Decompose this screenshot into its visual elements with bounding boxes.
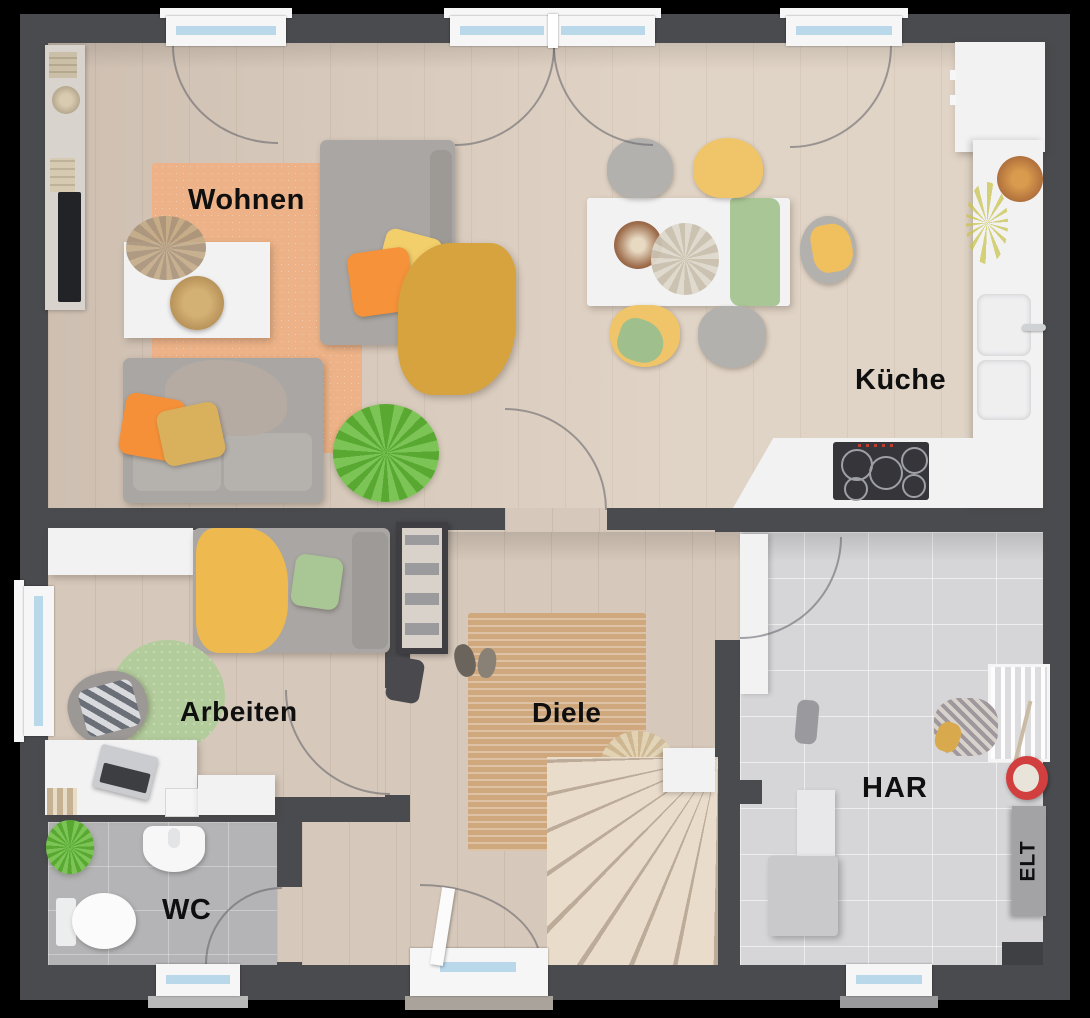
- desk-books: [47, 788, 77, 815]
- har-floor-niche: [1002, 942, 1043, 965]
- room-label-diele: Diele: [532, 697, 601, 729]
- washing-machine: [768, 856, 838, 936]
- diele-floor-entry: [302, 822, 410, 965]
- dining-chair-grey-1: [607, 138, 673, 198]
- elt-panel-label: ELT: [1017, 840, 1041, 881]
- elt-panel: ELT: [1012, 806, 1046, 916]
- office-sideboard: [48, 528, 193, 575]
- wardrobe-items: [405, 535, 439, 635]
- room-label-arbeiten: Arbeiten: [180, 696, 298, 728]
- stair-landing: [663, 748, 715, 792]
- burner-4: [901, 447, 928, 474]
- daybed-pillow-green: [290, 553, 345, 611]
- decor-branch: [966, 182, 1008, 264]
- room-label-wc: WC: [162, 894, 211, 927]
- window-wc-glass: [166, 975, 230, 984]
- window-sill-har: [840, 996, 938, 1008]
- floor-plan: ELT Wohnen Küche Arbeiten Diele WC HAR: [0, 0, 1090, 1018]
- toilet-bowl: [72, 893, 136, 949]
- fridge-hinge-top: [950, 70, 956, 80]
- pampas-plant: [126, 216, 206, 280]
- room-label-wohnen: Wohnen: [188, 184, 305, 217]
- dining-chair-yellow-1: [693, 138, 763, 198]
- books-stack-bottom: [50, 158, 75, 192]
- room-label-har: HAR: [862, 772, 928, 805]
- burner-5: [902, 474, 926, 498]
- terrace-door-mullion: [548, 14, 558, 48]
- entry-door-glass: [440, 962, 516, 972]
- window-top-left-glass: [176, 26, 276, 35]
- books-stack-top: [49, 52, 77, 78]
- decor-tray: [170, 276, 224, 330]
- doorway-har: [715, 532, 740, 640]
- window-sill-wc: [148, 996, 248, 1008]
- faucet: [1022, 324, 1046, 331]
- wall-nib-har: [740, 780, 762, 804]
- room-label-kueche: Küche: [855, 364, 946, 397]
- cooktop-controls: [858, 444, 898, 447]
- terrace-door-glass-left: [460, 26, 544, 35]
- terrace-door-glass-right: [561, 26, 645, 35]
- daybed-throw-yellow: [196, 528, 288, 653]
- fruit-bowl-counter: [997, 156, 1043, 202]
- office-low-cabinet: [198, 775, 275, 815]
- entry-door-step: [405, 996, 553, 1010]
- wc-plant: [46, 820, 94, 874]
- doorway-wohnen-diele: [505, 508, 607, 532]
- burner-3: [869, 456, 903, 490]
- fridge-hinge-bottom: [950, 95, 956, 105]
- throw-blanket-mustard: [398, 243, 516, 395]
- mop-head: [1013, 764, 1039, 792]
- tv-screen: [58, 192, 81, 302]
- window-left-glass: [34, 596, 43, 726]
- fern-plant: [333, 404, 439, 502]
- har-boiler: [794, 699, 820, 745]
- decor-pot: [52, 86, 80, 114]
- wc-sink-faucet: [168, 828, 180, 848]
- dining-chair-grey-2: [698, 306, 766, 368]
- dried-flowers: [651, 223, 719, 295]
- daybed-backrest: [352, 532, 388, 649]
- window-har-glass: [856, 975, 922, 984]
- desk-organizer: [165, 788, 199, 817]
- har-cabinet-small: [797, 790, 835, 856]
- fridge: [955, 42, 1045, 152]
- window-sill-left: [14, 580, 24, 742]
- sofa-small-cushion-right: [224, 433, 312, 491]
- sink-basin-bottom: [977, 360, 1031, 420]
- table-runner-green: [730, 198, 780, 306]
- burner-2: [844, 477, 868, 501]
- window-top-right-glass: [796, 26, 892, 35]
